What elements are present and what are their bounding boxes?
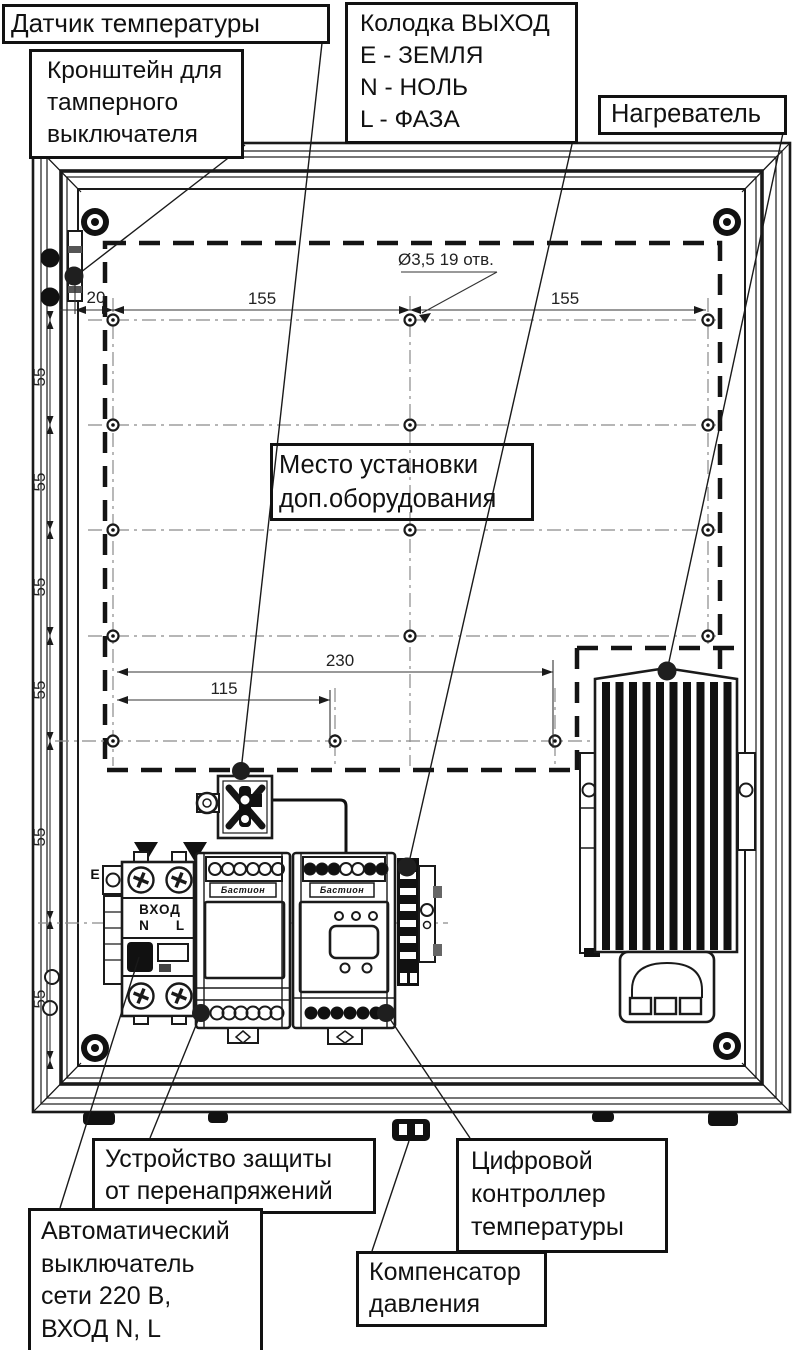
callout-surge-protector: Устройство защиты от перенапряжений	[92, 1138, 376, 1214]
dim-230: 230	[315, 651, 365, 671]
callout-temp-sensor: Датчик температуры	[2, 4, 330, 44]
dim-55-6: 55	[30, 979, 50, 1019]
dim-20: 20	[77, 288, 115, 308]
dim-155-left: 155	[237, 289, 287, 309]
dim-hole-note: Ø3,5 19 отв.	[398, 250, 508, 270]
dim-155-right: 155	[540, 289, 590, 309]
breaker-n-label: N	[136, 918, 152, 933]
callout-breaker: Автоматический выключатель сети 220 В, В…	[28, 1208, 263, 1350]
dim-55-4: 55	[30, 670, 50, 710]
heater-terminals	[630, 998, 701, 1014]
callout-compensator: Компенсатор давления	[356, 1251, 547, 1327]
dim-55-3: 55	[30, 567, 50, 607]
heater	[580, 669, 755, 1022]
breaker-l-label: L	[172, 918, 188, 933]
dim-55-5: 55	[30, 817, 50, 857]
breaker-input-label: ВХОД	[133, 902, 187, 917]
callout-heater: Нагреватель	[598, 95, 787, 135]
temperature-sensor-assembly	[197, 776, 346, 857]
leader-lines	[60, 43, 783, 1251]
surge-brand-logo: Бастион	[211, 885, 275, 895]
enclosure-mounting-diagram: Датчик температуры Кронштейн для тамперн…	[0, 0, 800, 1350]
dim-115: 115	[199, 679, 249, 699]
callout-tamper-bracket: Кронштейн для тамперного выключателя	[29, 49, 244, 159]
sensor-wire	[272, 800, 346, 857]
output-terminal-block	[397, 858, 442, 986]
pressure-compensator	[392, 1119, 430, 1141]
earth-label: E	[88, 866, 102, 882]
callout-controller: Цифровой контроллер температуры	[456, 1138, 668, 1253]
controller-brand-logo: Бастион	[311, 885, 373, 895]
dim-55-2: 55	[30, 462, 50, 502]
circuit-breaker	[122, 842, 207, 1024]
callout-output-block: Колодка ВЫХОД E - ЗЕМЛЯ N - НОЛЬ L - ФАЗ…	[345, 2, 578, 144]
callout-equipment-area: Место установки доп.оборудования	[270, 443, 534, 521]
surge-protection-module	[196, 853, 290, 1043]
breaker-toggle	[127, 942, 153, 972]
dim-55-1: 55	[30, 357, 50, 397]
